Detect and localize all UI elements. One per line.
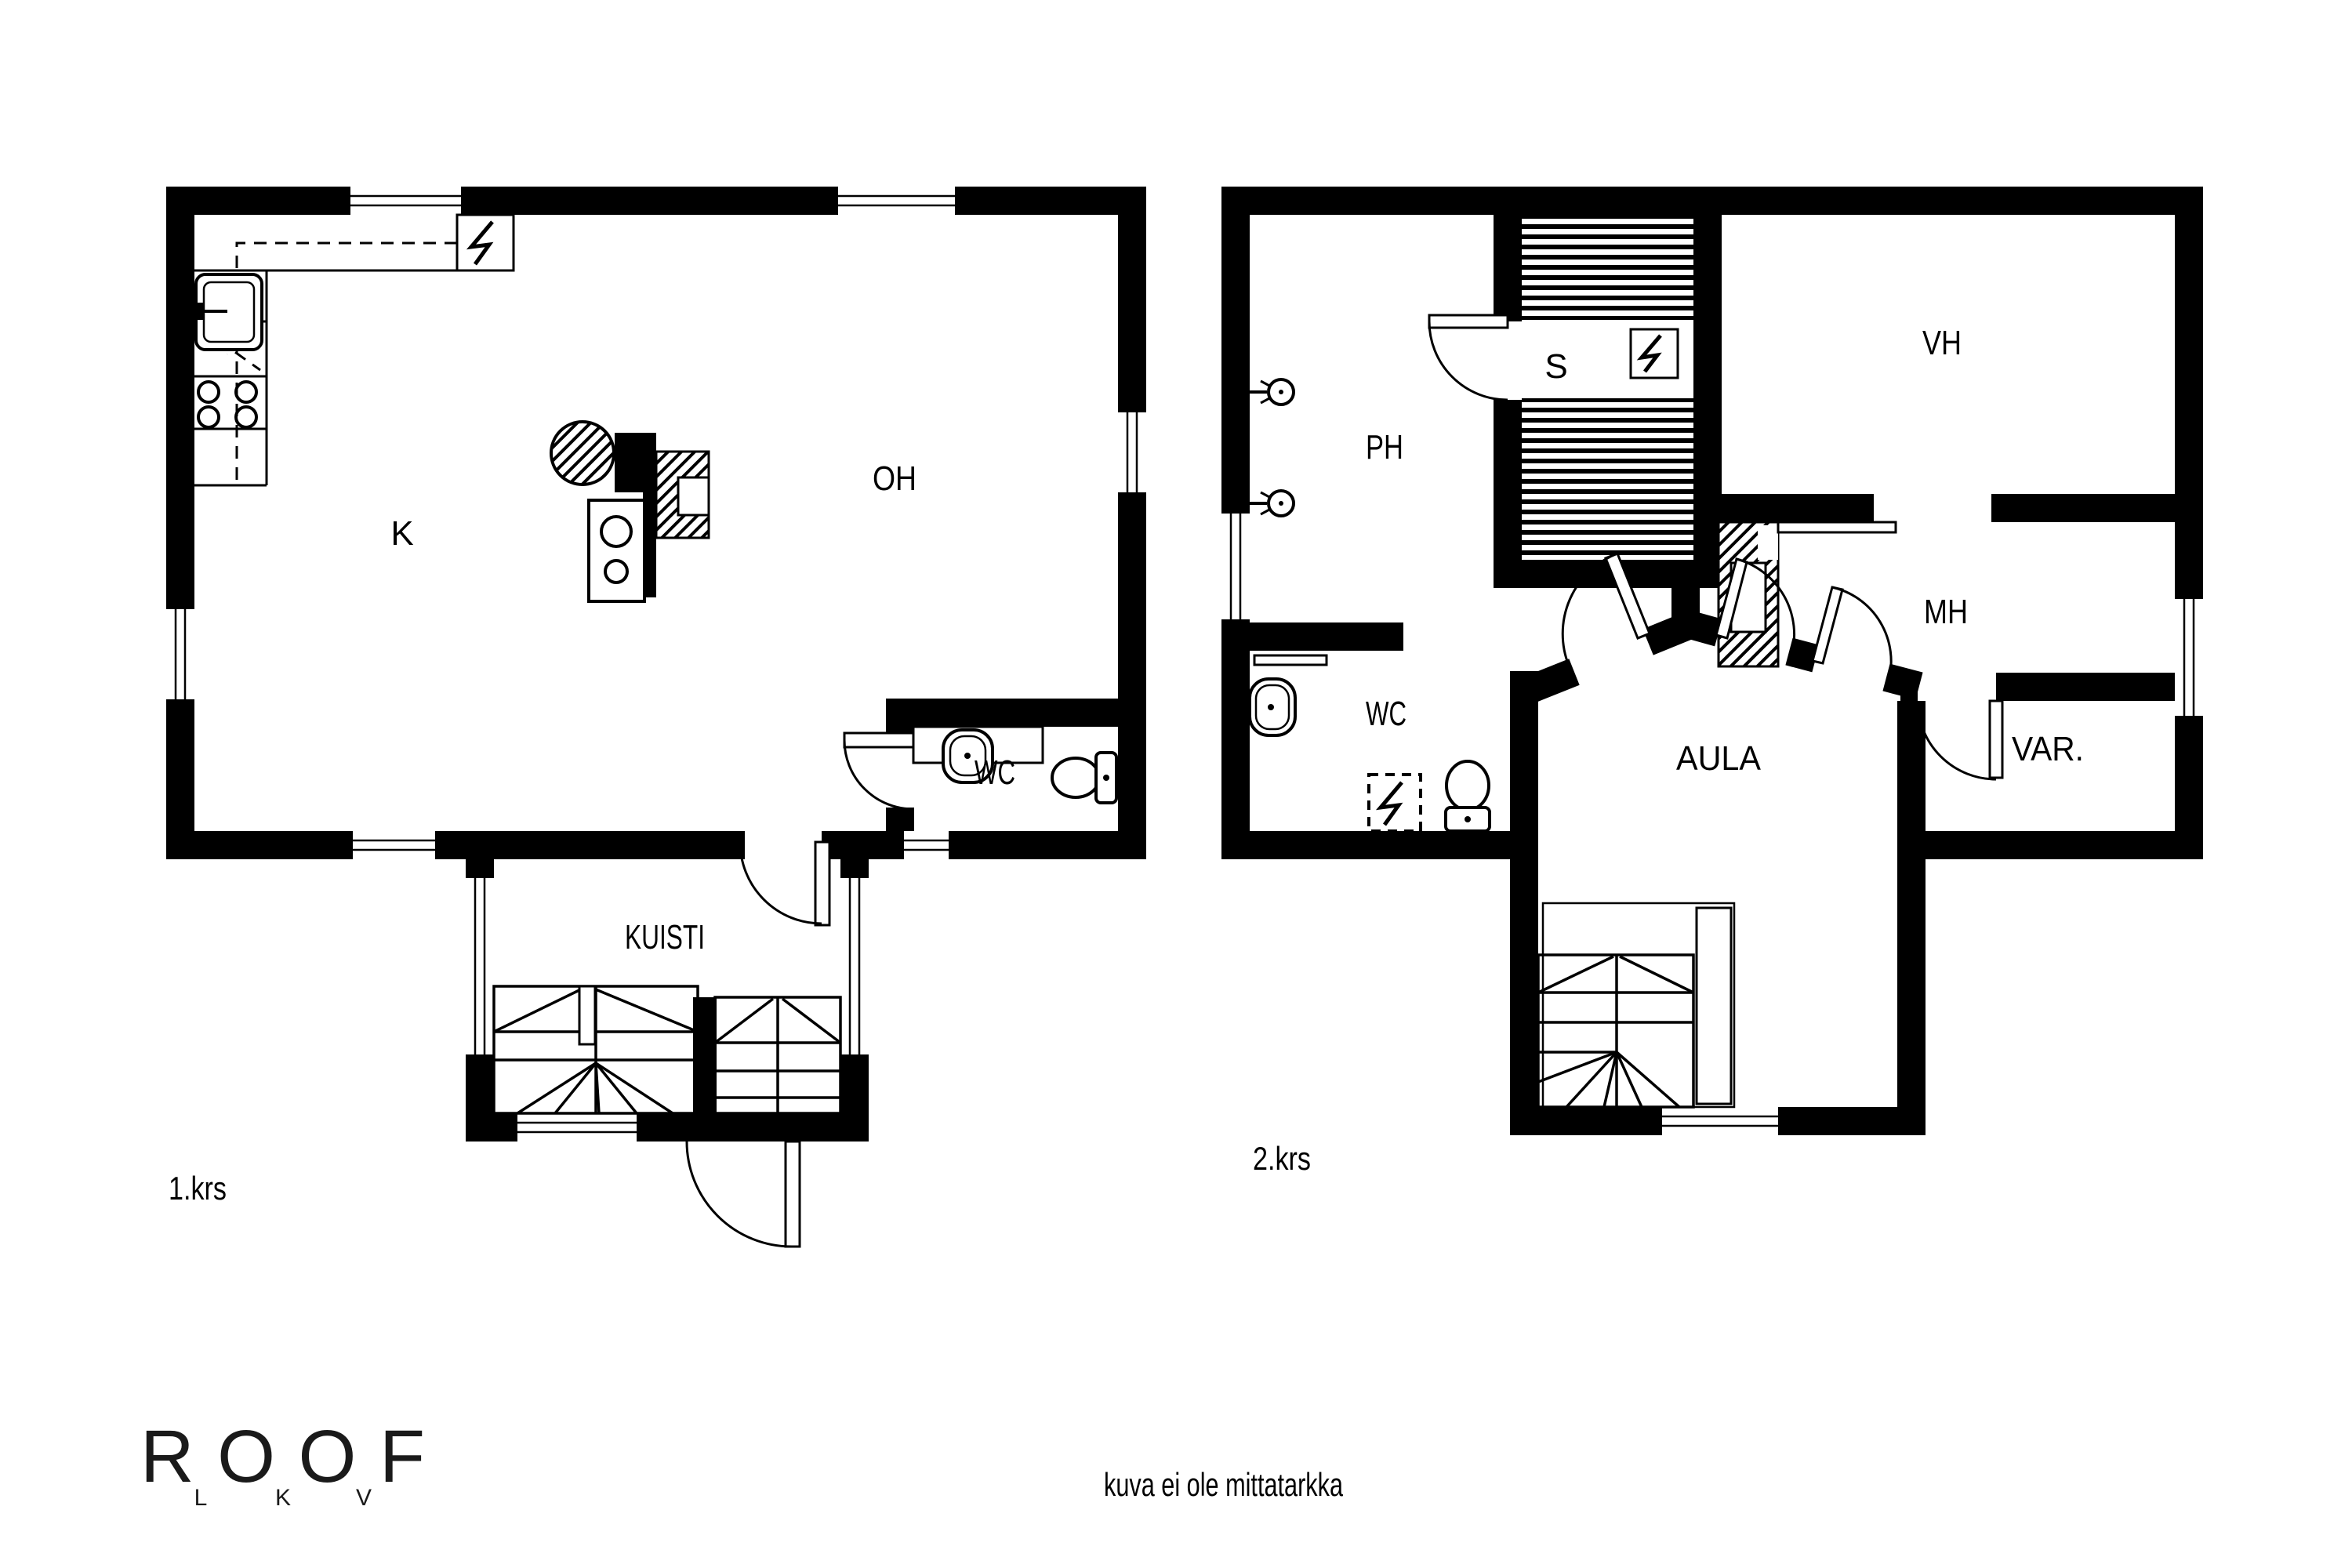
room-label-var: VAR. [2012, 730, 2084, 768]
room-label-vh: VH [1922, 324, 1962, 362]
logo-letter-k: K [275, 1485, 291, 1511]
fireplace-icon [551, 422, 614, 485]
toilet-icon [1052, 753, 1116, 803]
window-icon [353, 831, 435, 859]
room-label-oh: OH [873, 459, 916, 498]
room-label-s: S [1544, 347, 1567, 386]
floorplan-drawing: K OH WC KUISTI 1.krs [0, 0, 2352, 1568]
floor-2-label: 2.krs [1253, 1140, 1311, 1177]
room-label-aula: AULA [1676, 739, 1762, 778]
window-icon [1118, 412, 1146, 492]
logo-letter-v: V [356, 1485, 372, 1511]
toilet-icon [1446, 761, 1490, 831]
floorplan-page: K OH WC KUISTI 1.krs [0, 0, 2352, 1568]
logo-letter-l: L [194, 1485, 208, 1511]
room-label-k: K [390, 514, 413, 553]
sliding-door-leaf [1778, 522, 1896, 532]
shelf [1254, 655, 1327, 665]
window-icon [838, 187, 955, 215]
disclaimer-text: kuva ei ole mittatarkka [1104, 1466, 1343, 1503]
door-opening [745, 831, 822, 859]
floor-1-label: 1.krs [169, 1170, 227, 1207]
window-icon [1662, 1107, 1778, 1135]
window-icon [840, 878, 869, 1054]
window-icon [1221, 514, 1250, 619]
window-icon [166, 609, 194, 699]
room-label-kuisti: KUISTI [625, 918, 705, 956]
room-label-mh: MH [1924, 593, 1968, 631]
electrical-panel [457, 215, 514, 270]
room-label-wc2: WC [1366, 695, 1406, 733]
paper-background [0, 0, 2352, 1568]
window-icon [517, 1113, 637, 1142]
sink-icon [193, 274, 262, 350]
room-label-wc: WC [975, 753, 1015, 792]
sauna-stove [1631, 329, 1678, 378]
window-icon [2175, 599, 2203, 716]
sink-icon [1250, 679, 1295, 735]
window-icon [904, 831, 949, 859]
room-label-ph: PH [1366, 428, 1403, 466]
window-icon [350, 187, 461, 215]
window-icon [466, 878, 494, 1054]
